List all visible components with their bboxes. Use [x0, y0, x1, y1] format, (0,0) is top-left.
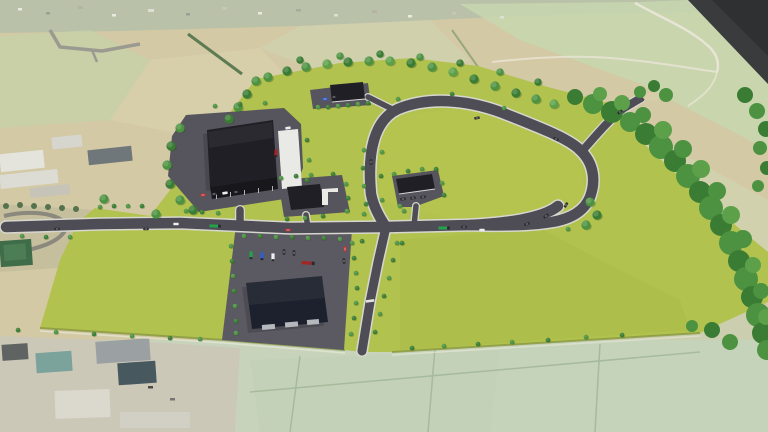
masterplan-render — [0, 0, 768, 432]
farm-shed — [35, 351, 72, 373]
car-icon — [54, 228, 59, 231]
box-truck-icon — [271, 253, 274, 261]
car-icon — [342, 258, 345, 264]
farm-shed — [95, 338, 150, 364]
box-truck-icon — [249, 251, 252, 259]
unit-b-roof — [287, 184, 324, 210]
farm-shed — [117, 361, 156, 386]
farm-shed — [1, 343, 28, 361]
box-truck-icon — [260, 252, 263, 260]
car-icon — [143, 228, 148, 231]
car-icon — [285, 229, 290, 232]
driveway — [414, 206, 416, 226]
concrete-pad — [55, 389, 111, 419]
unit-a-roof — [330, 82, 365, 102]
car-icon — [283, 249, 286, 254]
car-icon — [461, 226, 466, 229]
car-icon — [343, 246, 346, 252]
car-icon — [479, 229, 484, 232]
box-truck-icon — [274, 149, 278, 157]
car-icon — [370, 159, 373, 164]
car-icon — [293, 250, 296, 255]
sports-court-inner — [3, 243, 26, 260]
field-patch — [250, 350, 500, 432]
aerial-render-canvas — [0, 0, 768, 432]
concrete-pad — [120, 412, 190, 428]
semi-truck-icon — [209, 224, 221, 227]
farm-vehicle — [170, 398, 175, 401]
farm-vehicle — [148, 386, 153, 389]
car-icon — [173, 223, 178, 226]
semi-truck-icon — [438, 227, 450, 230]
